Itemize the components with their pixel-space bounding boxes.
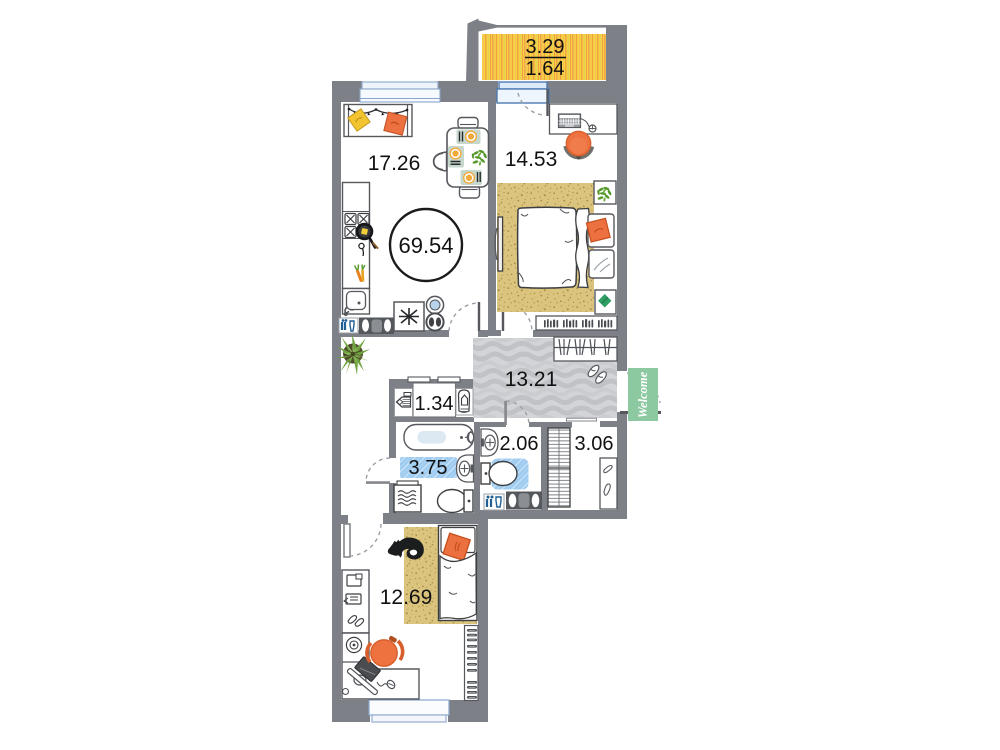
svg-text:3.06: 3.06 [575,433,614,455]
svg-text:3.29: 3.29 [526,36,565,58]
svg-text:2.06: 2.06 [500,433,539,455]
svg-text:1.64: 1.64 [526,58,565,80]
svg-text:3.75: 3.75 [409,457,448,479]
svg-text:17.26: 17.26 [368,152,421,175]
svg-text:69.54: 69.54 [398,233,453,258]
svg-text:1.34: 1.34 [415,393,454,415]
svg-text:14.53: 14.53 [505,148,558,171]
svg-text:13.21: 13.21 [505,368,558,391]
svg-text:12.69: 12.69 [380,586,433,609]
svg-text:Welcome: Welcome [636,371,650,418]
